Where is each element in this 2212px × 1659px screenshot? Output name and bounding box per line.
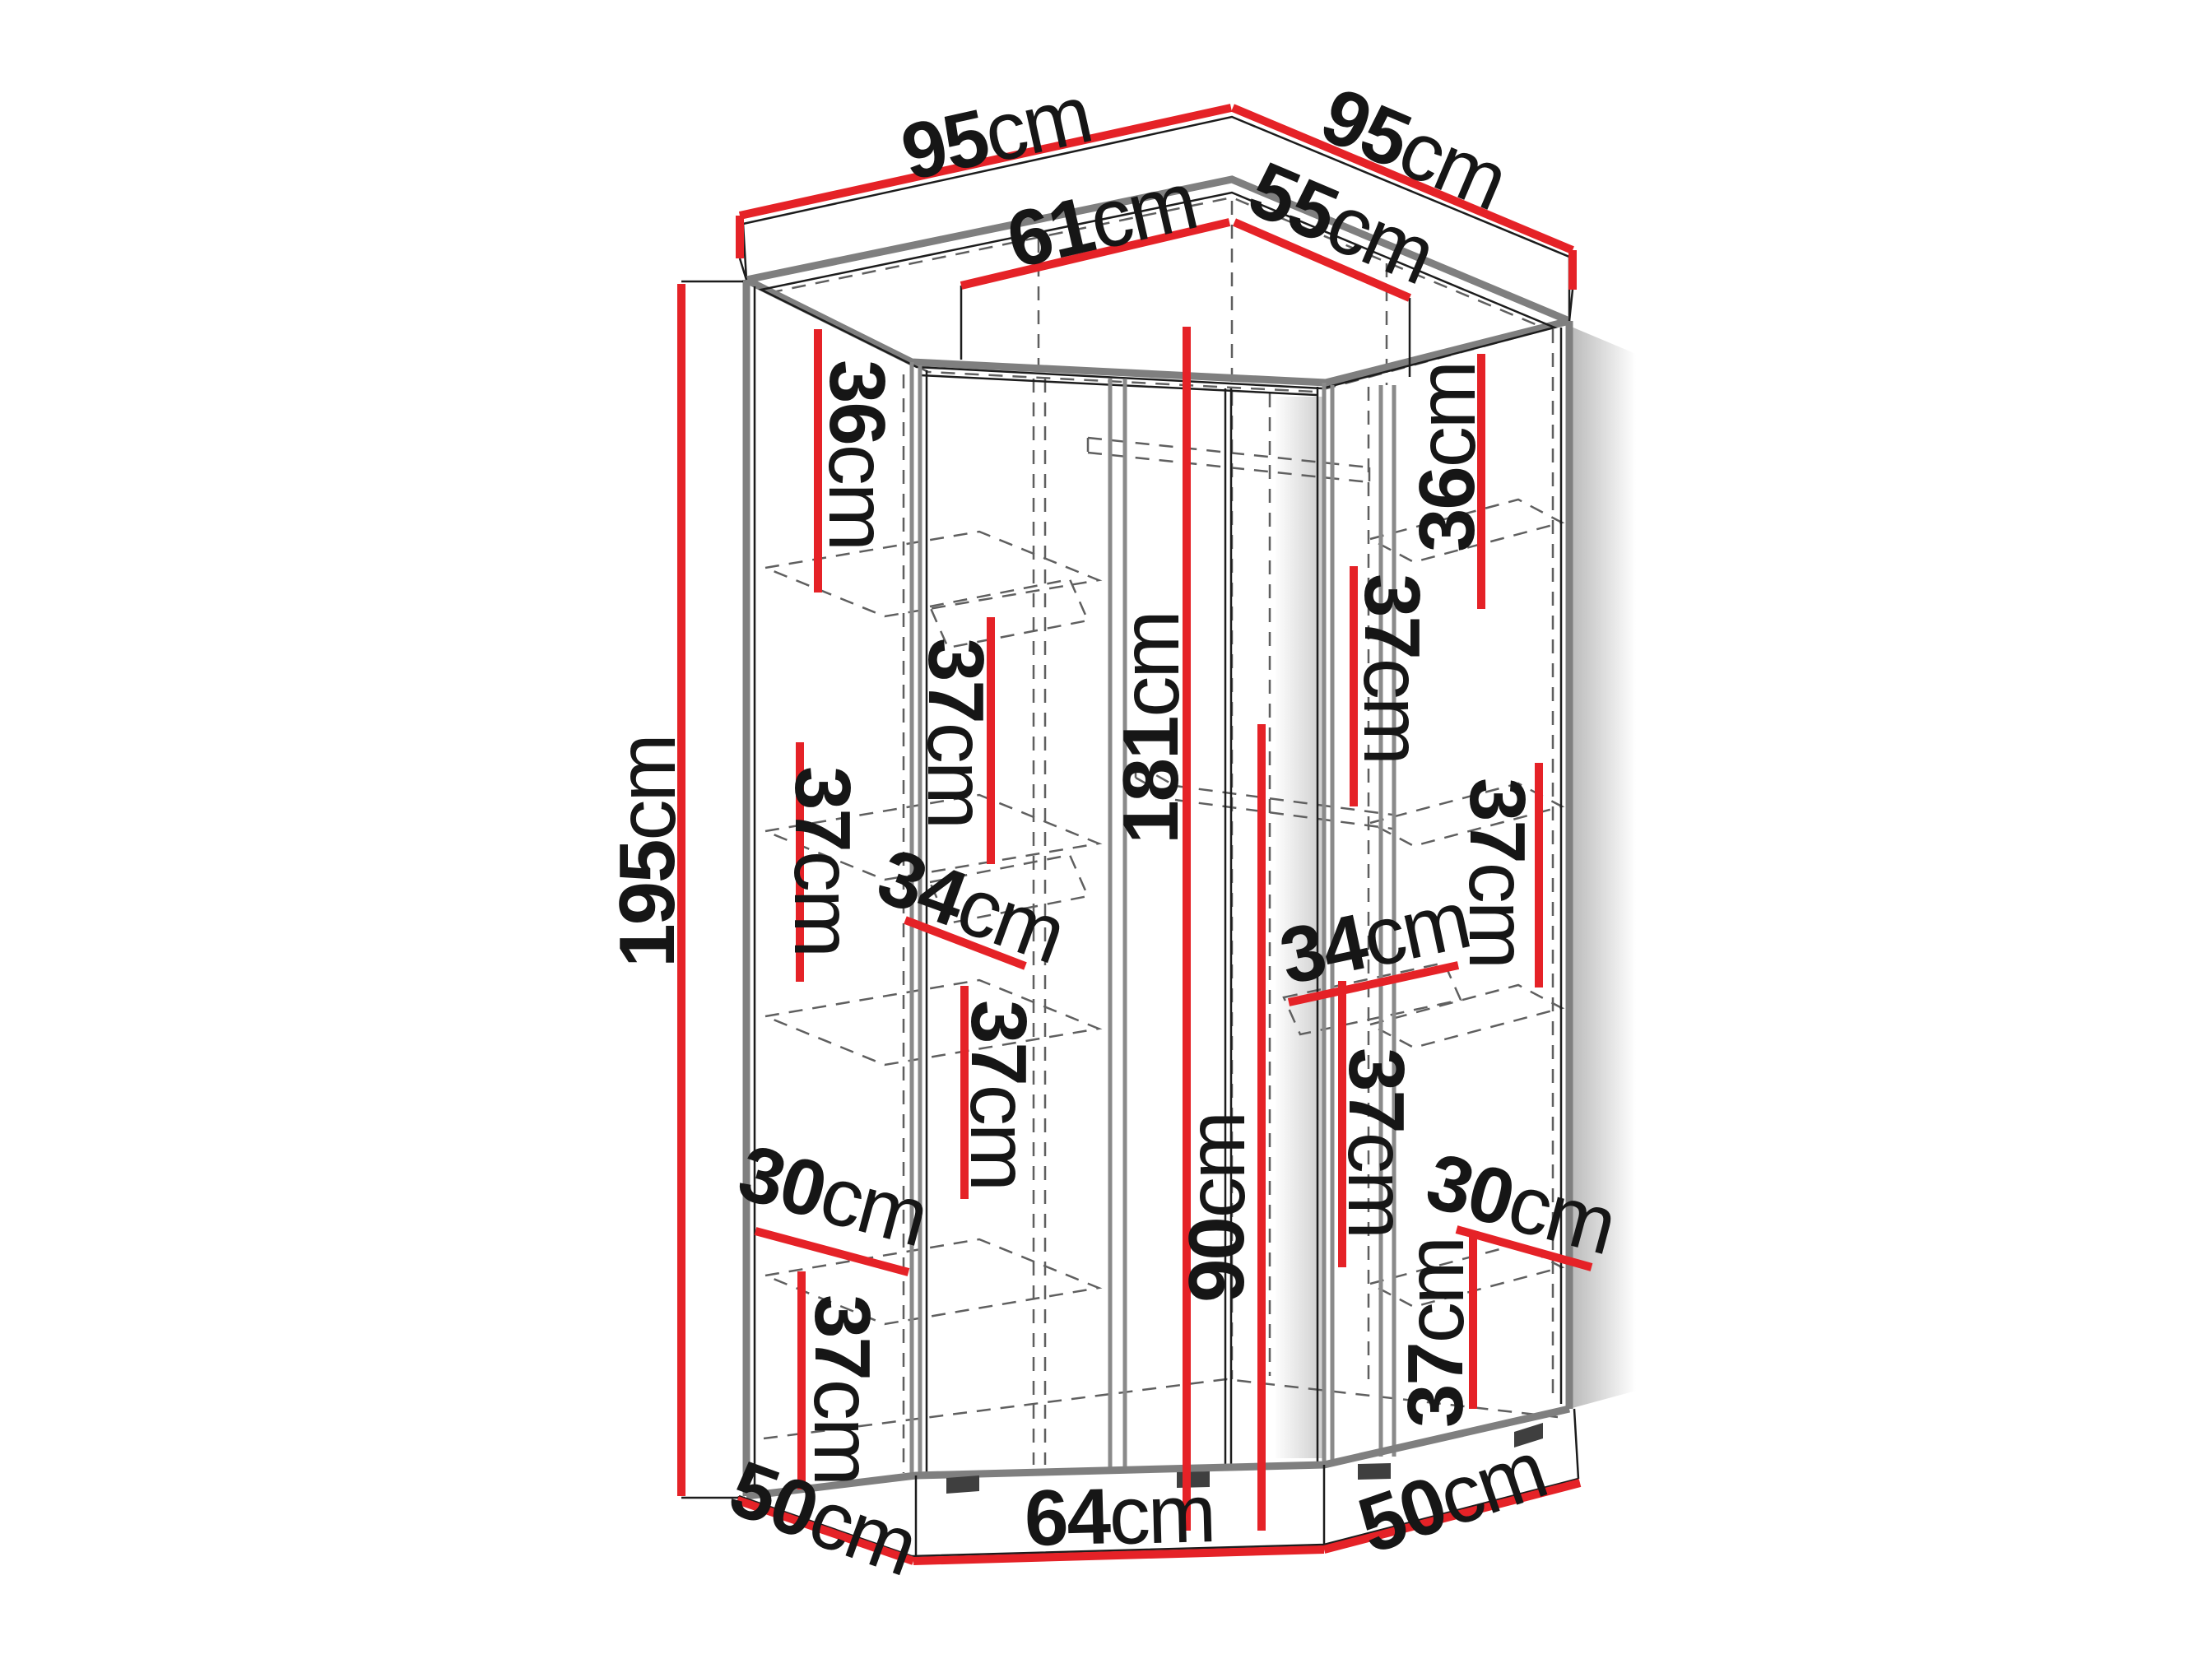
dim-label-34-left: 34cm <box>867 829 1076 981</box>
dim-label-90: 90cm <box>1170 1113 1262 1303</box>
hanging-rail-top <box>1088 438 1369 482</box>
dim-label-37-left-c: 37cm <box>953 1000 1045 1189</box>
dim-label-50-right: 50cm <box>1347 1424 1556 1573</box>
left-partition <box>1110 379 1125 1471</box>
dim-label-64: 64cm <box>1024 1467 1215 1564</box>
dim-label-37-right-a: 37cm <box>1346 574 1438 763</box>
corner-wardrobe-diagram: 95cm 95cm 61cm 55cm 195cm 36cm 37cm 37cm… <box>0 0 2212 1659</box>
dim-label-30-left: 30cm <box>729 1126 936 1264</box>
dim-label-37-right-c: 37cm <box>1389 1238 1481 1428</box>
dim-label-37-right-b: 37cm <box>1331 1048 1423 1237</box>
diagram-canvas: 95cm 95cm 61cm 55cm 195cm 36cm 37cm 37cm… <box>0 0 2212 1659</box>
dim-label-181: 181cm <box>1104 612 1197 843</box>
dim-label-36-right: 36cm <box>1401 363 1493 552</box>
dim-label-37-left-b: 37cm <box>777 766 869 955</box>
dim-label-195: 195cm <box>601 736 693 967</box>
dim-label-37-left-d: 37cm <box>797 1294 889 1484</box>
dim-label-61: 61cm <box>998 155 1203 287</box>
dim-label-36-left: 36cm <box>811 360 904 549</box>
foot <box>946 1475 979 1494</box>
shelf <box>765 980 1099 1065</box>
shelf <box>1370 985 1562 1048</box>
door-split-edges <box>1225 388 1231 1468</box>
dim-label-37-left-a: 37cm <box>910 638 1002 827</box>
dim-label-95-left: 95cm <box>894 67 1099 198</box>
